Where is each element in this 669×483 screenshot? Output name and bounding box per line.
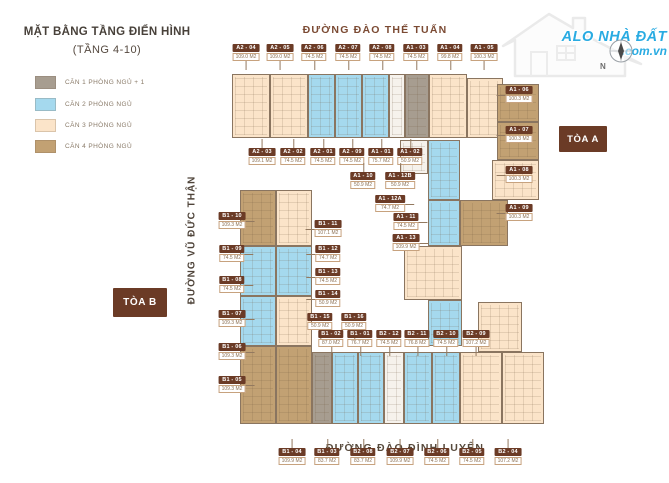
unit-area: 74.5 M2 — [310, 157, 335, 165]
unit-area: 74.5 M2 — [315, 277, 340, 285]
unit-area: 109.0 M2 — [233, 53, 260, 61]
leader-line — [389, 347, 390, 356]
leader-line — [245, 221, 254, 222]
floor-plan: A2 - 04109.0 M2A2 - 05109.0 M2A2 - 0674.… — [0, 0, 669, 483]
unit-code: A2 - 01 — [310, 148, 335, 156]
leader-line — [497, 95, 506, 96]
unit-label: B1 - 1550.9 M2 — [307, 313, 332, 330]
unit-area: 50.9 M2 — [307, 322, 332, 330]
unit-label: A1 - 07100.3 M2 — [506, 126, 533, 143]
unit-label: B2 - 07109.9 M2 — [387, 448, 414, 465]
unit-code: B2 - 06 — [424, 448, 449, 456]
unit-area: 109.1 M2 — [249, 157, 276, 165]
unit-code: B1 - 14 — [315, 290, 340, 298]
unit-label: B2 - 1176.8 M2 — [404, 330, 429, 347]
unit-code: A1 - 13 — [393, 234, 420, 242]
leader-line — [314, 61, 315, 70]
unit-area: 109.9 M2 — [387, 457, 414, 465]
unit-code: A2 - 03 — [249, 148, 276, 156]
unit-label: B1 - 1650.9 M2 — [341, 313, 366, 330]
unit-block — [308, 74, 335, 138]
unit-area: 87.0 M2 — [318, 339, 343, 347]
unit-label: B1 - 1450.9 M2 — [315, 290, 340, 307]
leader-line — [348, 61, 349, 70]
unit-block — [502, 352, 544, 424]
unit-area: 100.3 M2 — [506, 95, 533, 103]
leader-line — [306, 254, 315, 255]
unit-block — [358, 352, 384, 424]
unit-block — [312, 352, 332, 424]
unit-label: B2 - 0574.5 M2 — [459, 448, 484, 465]
unit-label: B1 - 11107.1 M2 — [315, 220, 342, 237]
unit-label: A2 - 03109.1 M2 — [249, 148, 276, 165]
unit-code: B1 - 15 — [307, 313, 332, 321]
unit-area: 109.0 M2 — [267, 53, 294, 61]
unit-label: B1 - 06109.3 M2 — [219, 343, 246, 360]
leader-line — [360, 347, 361, 356]
unit-label: B1 - 0176.7 M2 — [347, 330, 372, 347]
leader-line — [508, 439, 509, 448]
floor-plan-page: ALO NHÀ ĐẤT .com.vn N MẶT BẰNG TẦNG ĐIỂN… — [0, 0, 669, 483]
unit-block — [460, 352, 502, 424]
unit-area: 74.5 M2 — [459, 457, 484, 465]
leader-line — [484, 61, 485, 70]
leader-line — [419, 243, 428, 244]
unit-code: B1 - 12 — [315, 245, 340, 253]
unit-code: B2 - 05 — [459, 448, 484, 456]
leader-line — [400, 163, 401, 172]
unit-code: A1 - 09 — [506, 204, 533, 212]
unit-label: A2 - 0274.5 M2 — [280, 148, 305, 165]
unit-area: 74.5 M2 — [376, 339, 401, 347]
unit-code: B2 - 07 — [387, 448, 414, 456]
unit-code: B2 - 12 — [376, 330, 401, 338]
unit-label: A1 - 0250.9 M2 — [397, 148, 422, 165]
unit-label: A2 - 0674.5 M2 — [301, 44, 326, 61]
unit-code: A2 - 04 — [233, 44, 260, 52]
unit-area: 50.9 M2 — [397, 157, 422, 165]
unit-area: 76.8 M2 — [404, 339, 429, 347]
unit-code: B1 - 06 — [219, 343, 246, 351]
unit-code: A1 - 01 — [368, 148, 393, 156]
unit-label: B1 - 07109.3 M2 — [219, 310, 246, 327]
unit-area: 74.5 M2 — [403, 53, 428, 61]
leader-line — [352, 139, 353, 148]
leader-line — [446, 347, 447, 356]
leader-line — [245, 352, 254, 353]
unit-label: B2 - 1274.5 M2 — [376, 330, 401, 347]
unit-code: A2 - 05 — [267, 44, 294, 52]
unit-label: A1 - 05100.3 M2 — [471, 44, 498, 61]
unit-label: B1 - 1274.7 M2 — [315, 245, 340, 262]
unit-label: A1 - 12B50.9 M2 — [385, 172, 415, 189]
leader-line — [245, 285, 254, 286]
unit-label: B1 - 10109.3 M2 — [219, 212, 246, 229]
unit-area: 76.7 M2 — [347, 339, 372, 347]
unit-label: B1 - 04109.9 M2 — [279, 448, 306, 465]
leader-line — [306, 299, 315, 300]
unit-code: A2 - 09 — [339, 148, 364, 156]
unit-code: A2 - 06 — [301, 44, 326, 52]
unit-label: A1 - 08100.3 M2 — [506, 166, 533, 183]
unit-area: 74.5 M2 — [219, 254, 244, 262]
unit-block — [232, 74, 270, 138]
leader-line — [410, 139, 411, 148]
unit-label: A2 - 05109.0 M2 — [267, 44, 294, 61]
leader-line — [293, 139, 294, 148]
leader-line — [497, 175, 506, 176]
unit-area: 107.2 M2 — [495, 457, 522, 465]
leader-line — [416, 61, 417, 70]
unit-area: 83.7 M2 — [350, 457, 375, 465]
leader-line — [323, 139, 324, 148]
leader-line — [437, 439, 438, 448]
unit-label: B1 - 0874.5 M2 — [219, 276, 244, 293]
unit-code: A1 - 12B — [385, 172, 415, 180]
unit-area: 74.5 M2 — [433, 339, 458, 347]
unit-block — [404, 352, 432, 424]
unit-area: 74.5 M2 — [339, 157, 364, 165]
unit-code: B1 - 13 — [315, 268, 340, 276]
unit-code: A1 - 07 — [506, 126, 533, 134]
unit-code: A1 - 04 — [437, 44, 462, 52]
unit-area: 100.3 M2 — [506, 213, 533, 221]
leader-line — [245, 319, 254, 320]
unit-area: 109.9 M2 — [279, 457, 306, 465]
unit-code: A1 - 10 — [350, 172, 375, 180]
unit-code: A1 - 12A — [375, 195, 405, 203]
unit-label: B2 - 04107.2 M2 — [495, 448, 522, 465]
unit-label: A1 - 1174.5 M2 — [393, 213, 418, 230]
unit-area: 74.5 M2 — [219, 285, 244, 293]
unit-block — [335, 74, 362, 138]
unit-label: A1 - 0499.8 M2 — [437, 44, 462, 61]
leader-line — [306, 229, 315, 230]
unit-area: 109.3 M2 — [219, 352, 246, 360]
unit-label: A2 - 0874.5 M2 — [369, 44, 394, 61]
unit-code: B1 - 09 — [219, 245, 244, 253]
unit-block — [276, 190, 312, 246]
unit-code: B1 - 10 — [219, 212, 246, 220]
unit-area: 83.7 M2 — [314, 457, 339, 465]
unit-code: A1 - 08 — [506, 166, 533, 174]
leader-line — [419, 222, 428, 223]
unit-code: A2 - 08 — [369, 44, 394, 52]
unit-area: 74.5 M2 — [280, 157, 305, 165]
leader-line — [327, 439, 328, 448]
unit-label: A1 - 0374.5 M2 — [403, 44, 428, 61]
unit-area: 100.3 M2 — [506, 175, 533, 183]
unit-code: B1 - 03 — [314, 448, 339, 456]
unit-label: A1 - 1050.9 M2 — [350, 172, 375, 189]
unit-code: B1 - 16 — [341, 313, 366, 321]
unit-block — [276, 346, 312, 424]
leader-line — [245, 385, 254, 386]
leader-line — [497, 135, 506, 136]
unit-area: 50.9 M2 — [315, 299, 340, 307]
unit-code: B1 - 04 — [279, 448, 306, 456]
leader-line — [476, 347, 477, 356]
unit-block — [384, 352, 404, 424]
leader-line — [363, 163, 364, 172]
unit-label: B2 - 1074.5 M2 — [433, 330, 458, 347]
unit-area: 50.9 M2 — [385, 181, 415, 189]
unit-block — [429, 74, 467, 138]
unit-label: A1 - 09100.3 M2 — [506, 204, 533, 221]
leader-line — [405, 204, 414, 205]
unit-area: 109.3 M2 — [219, 319, 246, 327]
unit-area: 74.7 M2 — [315, 254, 340, 262]
unit-block — [270, 74, 308, 138]
leader-line — [400, 439, 401, 448]
unit-area: 100.3 M2 — [471, 53, 498, 61]
leader-line — [381, 139, 382, 148]
leader-line — [306, 277, 315, 278]
leader-line — [245, 254, 254, 255]
unit-block — [428, 140, 460, 200]
unit-area: 109.9 M2 — [393, 243, 420, 251]
unit-area: 107.2 M2 — [463, 339, 490, 347]
leader-line — [363, 439, 364, 448]
unit-label: A2 - 04109.0 M2 — [233, 44, 260, 61]
unit-area: 109.3 M2 — [219, 385, 246, 393]
unit-code: A2 - 02 — [280, 148, 305, 156]
unit-label: B1 - 0287.0 M2 — [318, 330, 343, 347]
unit-label: A2 - 0774.5 M2 — [335, 44, 360, 61]
unit-code: B2 - 10 — [433, 330, 458, 338]
unit-label: B2 - 0674.5 M2 — [424, 448, 449, 465]
unit-code: B2 - 11 — [404, 330, 429, 338]
unit-block — [460, 200, 508, 246]
unit-code: A2 - 07 — [335, 44, 360, 52]
unit-area: 74.5 M2 — [424, 457, 449, 465]
leader-line — [472, 439, 473, 448]
unit-label: A2 - 0974.5 M2 — [339, 148, 364, 165]
unit-code: B2 - 08 — [350, 448, 375, 456]
unit-label: A1 - 12A74.7 M2 — [375, 195, 405, 212]
unit-block — [428, 200, 460, 246]
unit-area: 109.3 M2 — [219, 221, 246, 229]
unit-label: A2 - 0174.5 M2 — [310, 148, 335, 165]
unit-code: A1 - 02 — [397, 148, 422, 156]
leader-line — [246, 61, 247, 70]
unit-area: 74.5 M2 — [301, 53, 326, 61]
unit-area: 74.7 M2 — [375, 204, 405, 212]
unit-block — [404, 246, 462, 300]
unit-label: A1 - 06100.3 M2 — [506, 86, 533, 103]
unit-label: B2 - 0883.7 M2 — [350, 448, 375, 465]
unit-code: B2 - 09 — [463, 330, 490, 338]
leader-line — [382, 61, 383, 70]
leader-line — [450, 61, 451, 70]
unit-block — [362, 74, 389, 138]
unit-label: B1 - 1374.5 M2 — [315, 268, 340, 285]
leader-line — [262, 139, 263, 148]
unit-code: B1 - 02 — [318, 330, 343, 338]
unit-code: A1 - 05 — [471, 44, 498, 52]
unit-code: B1 - 05 — [219, 376, 246, 384]
unit-area: 74.5 M2 — [393, 222, 418, 230]
unit-code: B1 - 08 — [219, 276, 244, 284]
unit-label: B1 - 05109.3 M2 — [219, 376, 246, 393]
leader-line — [497, 213, 506, 214]
unit-block — [332, 352, 358, 424]
unit-code: B1 - 01 — [347, 330, 372, 338]
unit-code: A1 - 03 — [403, 44, 428, 52]
unit-block — [405, 74, 429, 138]
unit-label: B2 - 09107.2 M2 — [463, 330, 490, 347]
unit-code: A1 - 06 — [506, 86, 533, 94]
unit-block — [389, 74, 405, 138]
unit-label: A1 - 13109.9 M2 — [393, 234, 420, 251]
leader-line — [417, 347, 418, 356]
unit-area: 107.1 M2 — [315, 229, 342, 237]
unit-area: 74.5 M2 — [335, 53, 360, 61]
unit-area: 50.9 M2 — [350, 181, 375, 189]
unit-code: B2 - 04 — [495, 448, 522, 456]
unit-code: B1 - 11 — [315, 220, 342, 228]
unit-code: B1 - 07 — [219, 310, 246, 318]
unit-block — [432, 352, 460, 424]
leader-line — [280, 61, 281, 70]
unit-label: B1 - 0383.7 M2 — [314, 448, 339, 465]
unit-label: B1 - 0974.5 M2 — [219, 245, 244, 262]
unit-area: 99.8 M2 — [437, 53, 462, 61]
unit-area: 50.9 M2 — [341, 322, 366, 330]
leader-line — [292, 439, 293, 448]
unit-area: 74.5 M2 — [369, 53, 394, 61]
unit-area: 100.3 M2 — [506, 135, 533, 143]
unit-area: 75.7 M2 — [368, 157, 393, 165]
unit-code: A1 - 11 — [393, 213, 418, 221]
unit-label: A1 - 0175.7 M2 — [368, 148, 393, 165]
leader-line — [331, 347, 332, 356]
